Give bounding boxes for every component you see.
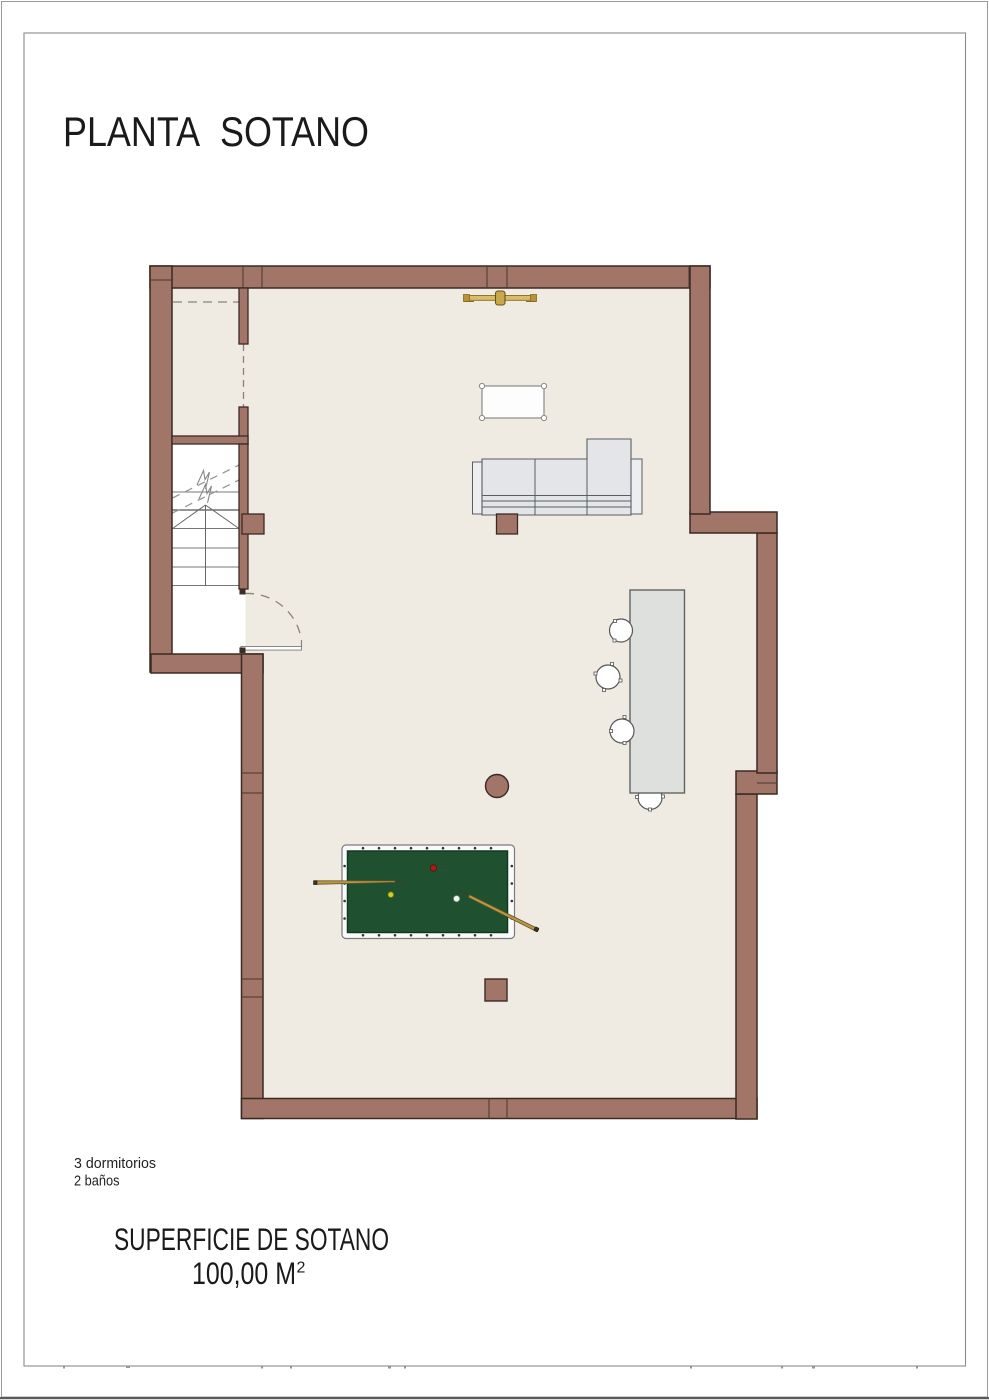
svg-text:2: 2: [297, 1260, 306, 1277]
svg-text:100,00 M: 100,00 M: [192, 1255, 296, 1291]
svg-text:2 baños: 2 baños: [74, 1173, 120, 1190]
svg-text:PLANTA SOTANO: PLANTA SOTANO: [63, 108, 369, 155]
svg-text:3 dormitorios: 3 dormitorios: [74, 1155, 156, 1172]
svg-text:SUPERFICIE DE SOTANO: SUPERFICIE DE SOTANO: [114, 1221, 389, 1257]
